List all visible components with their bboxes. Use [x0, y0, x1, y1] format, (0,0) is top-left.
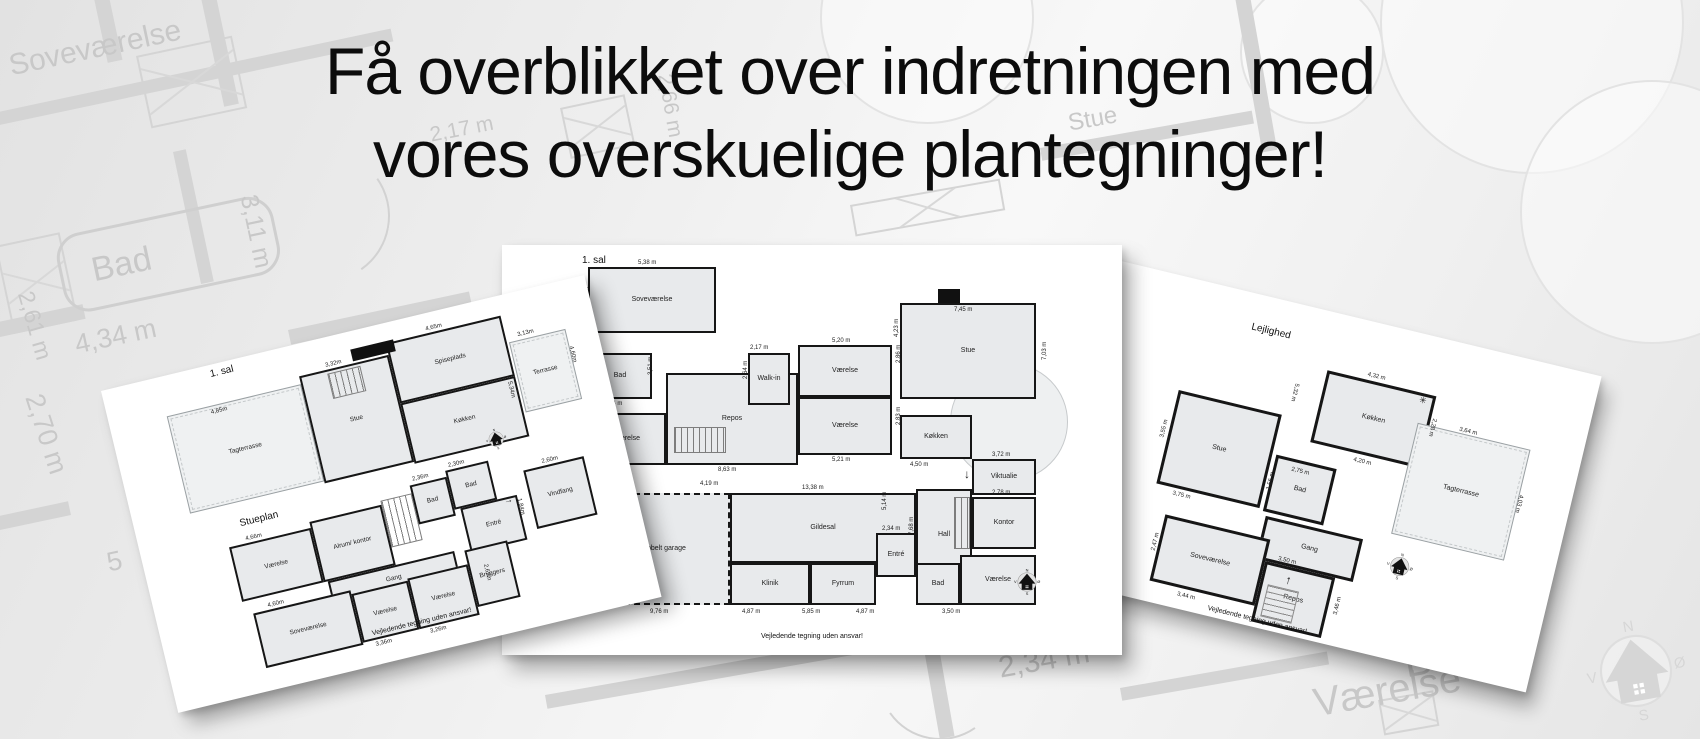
- dimension-label: 5,32 m: [1289, 383, 1299, 402]
- svg-text:N: N: [1622, 619, 1635, 637]
- room-label: Bad: [425, 495, 440, 507]
- dimension-label: 2,83 m: [896, 407, 902, 425]
- dimension-label: 2,34 m: [882, 526, 900, 532]
- svg-text:V: V: [1014, 579, 1017, 584]
- compass-icon: NØSV: [483, 426, 510, 453]
- room-label: Alrum/ kontor: [332, 534, 374, 552]
- dimension-label: 2,17 m: [750, 345, 768, 351]
- dimension-label: 13,38 m: [802, 485, 824, 491]
- room-label: Bad: [613, 371, 627, 381]
- compass-icon: NØSV: [1013, 568, 1041, 596]
- compass-icon: NØSV: [1383, 550, 1417, 584]
- dimension-label: ↓: [964, 467, 970, 481]
- room-kontor: Kontor: [972, 497, 1036, 549]
- dimension-label: 5,85 m: [802, 609, 820, 615]
- svg-text:Ø: Ø: [1037, 579, 1040, 584]
- room-klinik: Klinik: [730, 563, 810, 605]
- staircase: [1261, 584, 1299, 623]
- headline-line-2: vores overskuelige plantegninger!: [0, 113, 1700, 196]
- room-label: Tagterrasse: [227, 440, 264, 457]
- dimension-label: 3,44 m: [1176, 591, 1195, 601]
- room-label: Walk-in: [756, 374, 781, 384]
- room-label: Køkken: [923, 432, 949, 442]
- promo-banner: SoveværelseBad3,11 m2,61 m4,34 m2,70 m52…: [0, 0, 1700, 739]
- watermark-wall: [0, 501, 71, 533]
- room-label: Viktualie: [990, 472, 1018, 482]
- plan-title: Lejlighed: [1250, 321, 1292, 341]
- svg-text:S: S: [497, 446, 500, 450]
- chimney-block: [938, 289, 960, 303]
- plan-title: Stueplan: [239, 509, 280, 529]
- dimension-label: 3,72 m: [992, 452, 1010, 458]
- room-label: Værelse: [984, 575, 1012, 585]
- room-label: Værelse: [372, 604, 400, 619]
- room-label: Gildesal: [809, 523, 836, 533]
- room-label: Kontor: [993, 518, 1016, 528]
- room-label: Hall: [937, 530, 951, 540]
- dimension-label: 2,86 m: [896, 345, 902, 363]
- room-label: Bad: [1292, 484, 1308, 497]
- dimension-label: 5,21 m: [832, 457, 850, 463]
- dimension-label: 5,38 m: [638, 260, 656, 266]
- watermark-label: 2,70 m: [19, 390, 74, 478]
- dimension-label: 4,23 m: [894, 319, 900, 337]
- dimension-label: 2,64 m: [743, 361, 749, 379]
- dimension-label: 7,45 m: [954, 307, 972, 313]
- dimension-label: 3,36m: [375, 638, 393, 648]
- staircase: [674, 427, 726, 453]
- dimension-label: 3,75 m: [1172, 491, 1191, 501]
- room-label: Køkken: [452, 413, 478, 428]
- dimension-label: 3,26m: [430, 625, 448, 635]
- room-bad: Bad: [916, 563, 960, 605]
- svg-text:Ø: Ø: [503, 434, 507, 439]
- room-tagterrasse: Tagterrasse: [1391, 423, 1530, 561]
- dimension-label: 4,20 m: [1353, 457, 1372, 467]
- headline: Få overblikket over indretningen med vor…: [0, 30, 1700, 195]
- room-køkken: Køkken: [900, 415, 972, 459]
- room-vindfang: Vindfang: [523, 456, 597, 529]
- svg-text:N: N: [492, 428, 495, 432]
- room-label: Køkken: [1360, 412, 1387, 427]
- room-værelse: Værelse: [798, 397, 892, 455]
- room-værelse: Værelse: [798, 345, 892, 397]
- watermark-wall: [1120, 652, 1329, 701]
- room-label: Værelse: [430, 589, 458, 604]
- room-walk-in: Walk-in: [748, 353, 790, 405]
- room-label: Fyrrum: [831, 579, 855, 589]
- room-tagterrasse: Tagterrasse: [167, 384, 325, 513]
- dimension-label: 7,68 m: [909, 517, 915, 535]
- dimension-label: 9,76 m: [650, 609, 668, 615]
- room-bad: Bad: [1263, 455, 1337, 526]
- watermark-label: 5: [104, 545, 125, 578]
- room-soveværelse: Soveværelse: [588, 267, 716, 333]
- room-label: Vindfang: [546, 485, 575, 500]
- plan-title: 1. sal: [582, 255, 606, 266]
- watermark-compass-icon: NØSV: [1575, 610, 1698, 733]
- dimension-label: 7,03 m: [1042, 342, 1048, 360]
- room-værelse: Værelse: [229, 528, 324, 602]
- dimension-label: 4,19 m: [700, 481, 718, 487]
- plan-title: 1. sal: [209, 364, 235, 380]
- dimension-label: 4,50 m: [910, 462, 928, 468]
- room-label: Stue: [960, 346, 976, 356]
- room-fyrrum: Fyrrum: [810, 563, 876, 605]
- room-entr-: Entré: [876, 533, 916, 577]
- room-label: Soveværelse: [1188, 550, 1232, 569]
- dimension-label: 5,20 m: [832, 338, 850, 344]
- svg-text:S: S: [1026, 591, 1029, 596]
- dimension-label: 5,14 m: [882, 492, 888, 510]
- room-label: Bad: [464, 479, 479, 491]
- room-stue: Stue: [900, 303, 1036, 399]
- svg-text:V: V: [1386, 561, 1390, 567]
- room-label: Tagterrasse: [1441, 482, 1481, 500]
- room-soveværelse: Soveværelse: [1149, 514, 1270, 605]
- dimension-label: 4,87 m: [742, 609, 760, 615]
- room-label: Gang: [1299, 542, 1320, 556]
- dimension-label: 2,78 m: [992, 490, 1010, 496]
- dimension-label: 4,87 m: [856, 609, 874, 615]
- headline-line-1: Få overblikket over indretningen med: [0, 30, 1700, 113]
- room-label: Stue: [348, 413, 365, 425]
- room-label: Entré: [484, 517, 503, 530]
- room-label: Stue: [1210, 442, 1228, 455]
- dimension-label: 8,63 m: [718, 467, 736, 473]
- room-label: Bad: [931, 579, 945, 589]
- room-label: Værelse: [831, 366, 859, 376]
- room-label: Spiseplads: [433, 351, 468, 368]
- room-label: Soveværelse: [631, 295, 674, 305]
- svg-text:Ø: Ø: [1409, 566, 1413, 572]
- svg-text:N: N: [1026, 568, 1029, 572]
- svg-text:N: N: [1401, 552, 1405, 558]
- svg-text:Ø: Ø: [1673, 655, 1688, 673]
- svg-text:S: S: [1638, 707, 1651, 724]
- svg-text:S: S: [1395, 575, 1399, 581]
- room-label: Terrasse: [531, 363, 559, 378]
- svg-text:V: V: [1586, 670, 1599, 687]
- room-label: Værelse: [831, 421, 859, 431]
- dimension-label: 3,46 m: [1333, 596, 1343, 615]
- staircase: [954, 497, 970, 549]
- room-label: Klinik: [761, 579, 780, 589]
- room-label: Værelse: [263, 557, 291, 572]
- watermark-label: 4,34 m: [72, 313, 159, 360]
- dimension-label: 3,50 m: [942, 609, 960, 615]
- dimension-label: 3,51 m: [648, 357, 654, 375]
- room-label: Soveværelse: [288, 620, 329, 638]
- disclaimer-text: Vejledende tegning uden ansvar!: [761, 633, 863, 640]
- room-label: Repos: [721, 414, 743, 424]
- room-label: Entré: [887, 550, 906, 560]
